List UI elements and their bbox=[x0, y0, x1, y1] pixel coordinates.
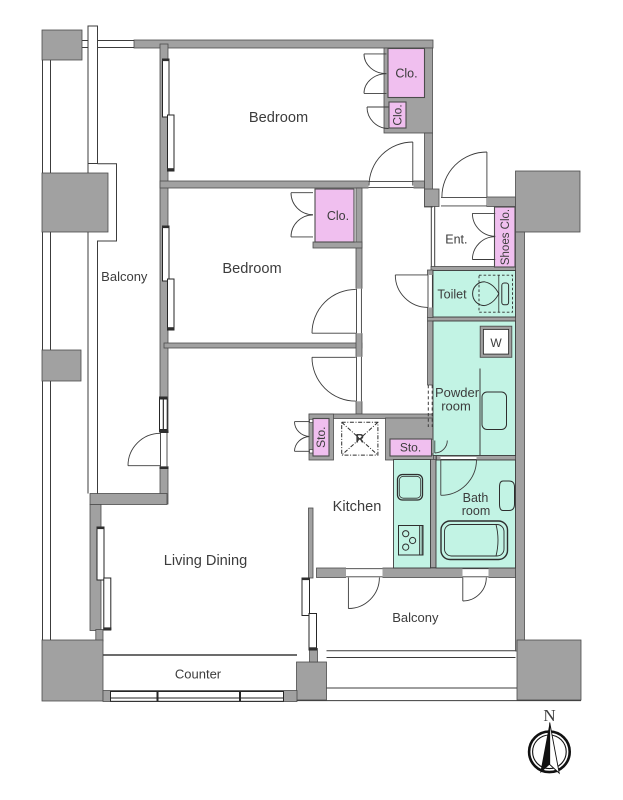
svg-text:Shoes Clo.: Shoes Clo. bbox=[500, 209, 512, 265]
svg-text:N: N bbox=[543, 706, 555, 725]
svg-text:Clo.: Clo. bbox=[395, 67, 417, 81]
svg-text:Kitchen: Kitchen bbox=[333, 499, 382, 515]
svg-text:Balcony: Balcony bbox=[101, 269, 148, 284]
svg-text:Balcony: Balcony bbox=[392, 610, 439, 625]
svg-text:Clo.: Clo. bbox=[391, 104, 405, 125]
svg-text:Living Dining: Living Dining bbox=[164, 553, 248, 569]
svg-text:room: room bbox=[462, 504, 490, 518]
svg-text:Bath: Bath bbox=[463, 491, 489, 505]
svg-text:room: room bbox=[441, 399, 471, 414]
svg-text:Counter: Counter bbox=[175, 667, 222, 682]
svg-text:Bedroom: Bedroom bbox=[249, 110, 308, 126]
svg-text:Sto.: Sto. bbox=[314, 427, 328, 448]
svg-text:Ent.: Ent. bbox=[445, 233, 467, 247]
svg-text:W: W bbox=[490, 336, 502, 350]
svg-text:Toilet: Toilet bbox=[437, 288, 467, 302]
svg-text:R: R bbox=[356, 434, 365, 446]
svg-text:Bedroom: Bedroom bbox=[222, 261, 281, 277]
svg-text:Clo.: Clo. bbox=[327, 209, 349, 223]
svg-text:Sto.: Sto. bbox=[400, 441, 421, 455]
